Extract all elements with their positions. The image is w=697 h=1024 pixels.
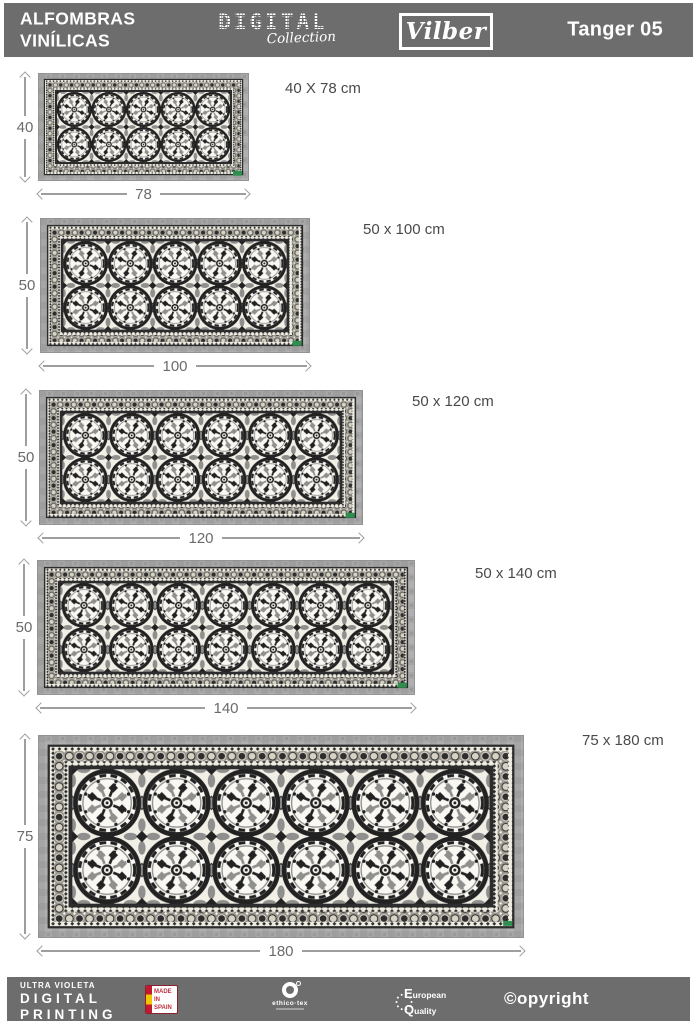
dimension-line bbox=[23, 639, 24, 691]
catalog-page: ALFOMBRAS VINÍLICAS DIGITAL Collection V… bbox=[0, 0, 697, 1024]
arrow-up-icon bbox=[19, 71, 30, 82]
arrow-down-icon bbox=[19, 171, 30, 182]
european-quality-logo: European Quality bbox=[395, 986, 446, 1017]
dimension-line bbox=[25, 394, 26, 446]
width-dimension: 180 bbox=[38, 944, 524, 958]
rug-180x75cm bbox=[38, 735, 524, 938]
width-dimension: 120 bbox=[39, 531, 363, 545]
height-dimension: 50 bbox=[16, 560, 32, 695]
dimension-line bbox=[160, 193, 246, 194]
height-value: 50 bbox=[19, 278, 36, 293]
dimension-line bbox=[24, 848, 25, 934]
arrow-right-icon bbox=[300, 360, 311, 371]
rug-size-label: 40 X 78 cm bbox=[285, 80, 361, 97]
rug-size-label: 50 x 100 cm bbox=[363, 221, 445, 238]
ethico-tex-logo: ethico·tex bbox=[265, 982, 315, 1010]
collection-script-text: Collection bbox=[210, 29, 336, 49]
page-title-line2: VINÍLICAS bbox=[20, 30, 135, 52]
dimension-line bbox=[43, 365, 154, 366]
width-dimension: 78 bbox=[38, 187, 249, 201]
height-dimension: 50 bbox=[18, 390, 34, 525]
page-title-line1: ALFOMBRAS bbox=[20, 8, 135, 30]
arrow-left-icon bbox=[36, 188, 47, 199]
ethico-tex-subline bbox=[276, 1008, 304, 1010]
dimension-line bbox=[24, 739, 25, 825]
printing-tech-label: ULTRA VIOLETA DIGITAL PRINTING bbox=[20, 981, 117, 1023]
width-value: 78 bbox=[135, 187, 152, 202]
printing-tech-line1: DIGITAL bbox=[20, 991, 117, 1007]
rug-120x50cm bbox=[39, 390, 363, 525]
arrow-left-icon bbox=[35, 702, 46, 713]
dimension-line bbox=[42, 537, 180, 538]
arrow-left-icon bbox=[37, 532, 48, 543]
arrow-down-icon bbox=[18, 685, 29, 696]
vilber-logo: Vilber bbox=[399, 13, 493, 50]
header-bar: ALFOMBRAS VINÍLICAS DIGITAL Collection V… bbox=[4, 3, 693, 57]
made-line3: SPAIN bbox=[154, 1004, 177, 1012]
arrow-up-icon bbox=[18, 558, 29, 569]
dimension-line bbox=[222, 537, 360, 538]
arrow-left-icon bbox=[36, 945, 47, 956]
height-value: 50 bbox=[18, 450, 35, 465]
dimension-line bbox=[247, 707, 412, 708]
width-value: 120 bbox=[188, 531, 213, 546]
rug-size-label: 50 x 140 cm bbox=[475, 565, 557, 582]
width-value: 140 bbox=[213, 701, 238, 716]
dimension-line bbox=[26, 222, 27, 274]
made-in-spain-badge: MADE IN SPAIN bbox=[145, 985, 178, 1014]
arrow-right-icon bbox=[514, 945, 525, 956]
dimension-line bbox=[23, 564, 24, 616]
width-value: 180 bbox=[268, 944, 293, 959]
width-value: 100 bbox=[162, 359, 187, 374]
arrow-up-icon bbox=[21, 216, 32, 227]
ethico-tex-text: ethico·tex bbox=[265, 1000, 315, 1007]
rug-100x50cm bbox=[40, 218, 310, 353]
page-title: ALFOMBRAS VINÍLICAS bbox=[20, 8, 135, 53]
model-name: Tanger 05 bbox=[567, 19, 663, 42]
height-value: 75 bbox=[17, 829, 34, 844]
dimension-line bbox=[40, 707, 205, 708]
arrow-down-icon bbox=[21, 343, 32, 354]
width-dimension: 100 bbox=[40, 359, 310, 373]
arrow-left-icon bbox=[38, 360, 49, 371]
dimension-line bbox=[25, 469, 26, 521]
footer-bar: ULTRA VIOLETA DIGITAL PRINTING MADE IN S… bbox=[7, 977, 690, 1021]
rug-140x50cm bbox=[37, 560, 415, 695]
height-value: 50 bbox=[16, 620, 33, 635]
rug-size-label: 50 x 120 cm bbox=[412, 393, 494, 410]
rug-size-label: 75 x 180 cm bbox=[582, 732, 664, 749]
arrow-down-icon bbox=[20, 515, 31, 526]
vilber-logo-text: Vilber bbox=[406, 20, 487, 43]
made-line2: IN bbox=[154, 996, 177, 1004]
printing-tech-line2: PRINTING bbox=[20, 1007, 117, 1023]
height-dimension: 75 bbox=[17, 735, 33, 938]
digital-collection-logo: DIGITAL Collection bbox=[210, 12, 336, 47]
made-in-spain-text: MADE IN SPAIN bbox=[152, 986, 177, 1013]
arrow-up-icon bbox=[19, 733, 30, 744]
stars-circle-icon bbox=[395, 991, 413, 1013]
dimension-line bbox=[41, 950, 260, 951]
arrow-right-icon bbox=[353, 532, 364, 543]
dimension-line bbox=[41, 193, 127, 194]
made-line1: MADE bbox=[154, 988, 177, 996]
dimension-line bbox=[302, 950, 521, 951]
dimension-line bbox=[196, 365, 307, 366]
dimension-line bbox=[26, 297, 27, 349]
ring-icon bbox=[282, 982, 298, 998]
rug-78x40cm bbox=[38, 73, 249, 181]
height-value: 40 bbox=[17, 120, 34, 135]
printing-tech-small: ULTRA VIOLETA bbox=[20, 981, 117, 990]
width-dimension: 140 bbox=[37, 701, 415, 715]
arrow-right-icon bbox=[239, 188, 250, 199]
arrow-right-icon bbox=[405, 702, 416, 713]
arrow-down-icon bbox=[19, 928, 30, 939]
height-dimension: 50 bbox=[19, 218, 35, 353]
copyright-text: ©opyright bbox=[504, 989, 589, 1009]
arrow-up-icon bbox=[20, 388, 31, 399]
height-dimension: 40 bbox=[17, 73, 33, 181]
